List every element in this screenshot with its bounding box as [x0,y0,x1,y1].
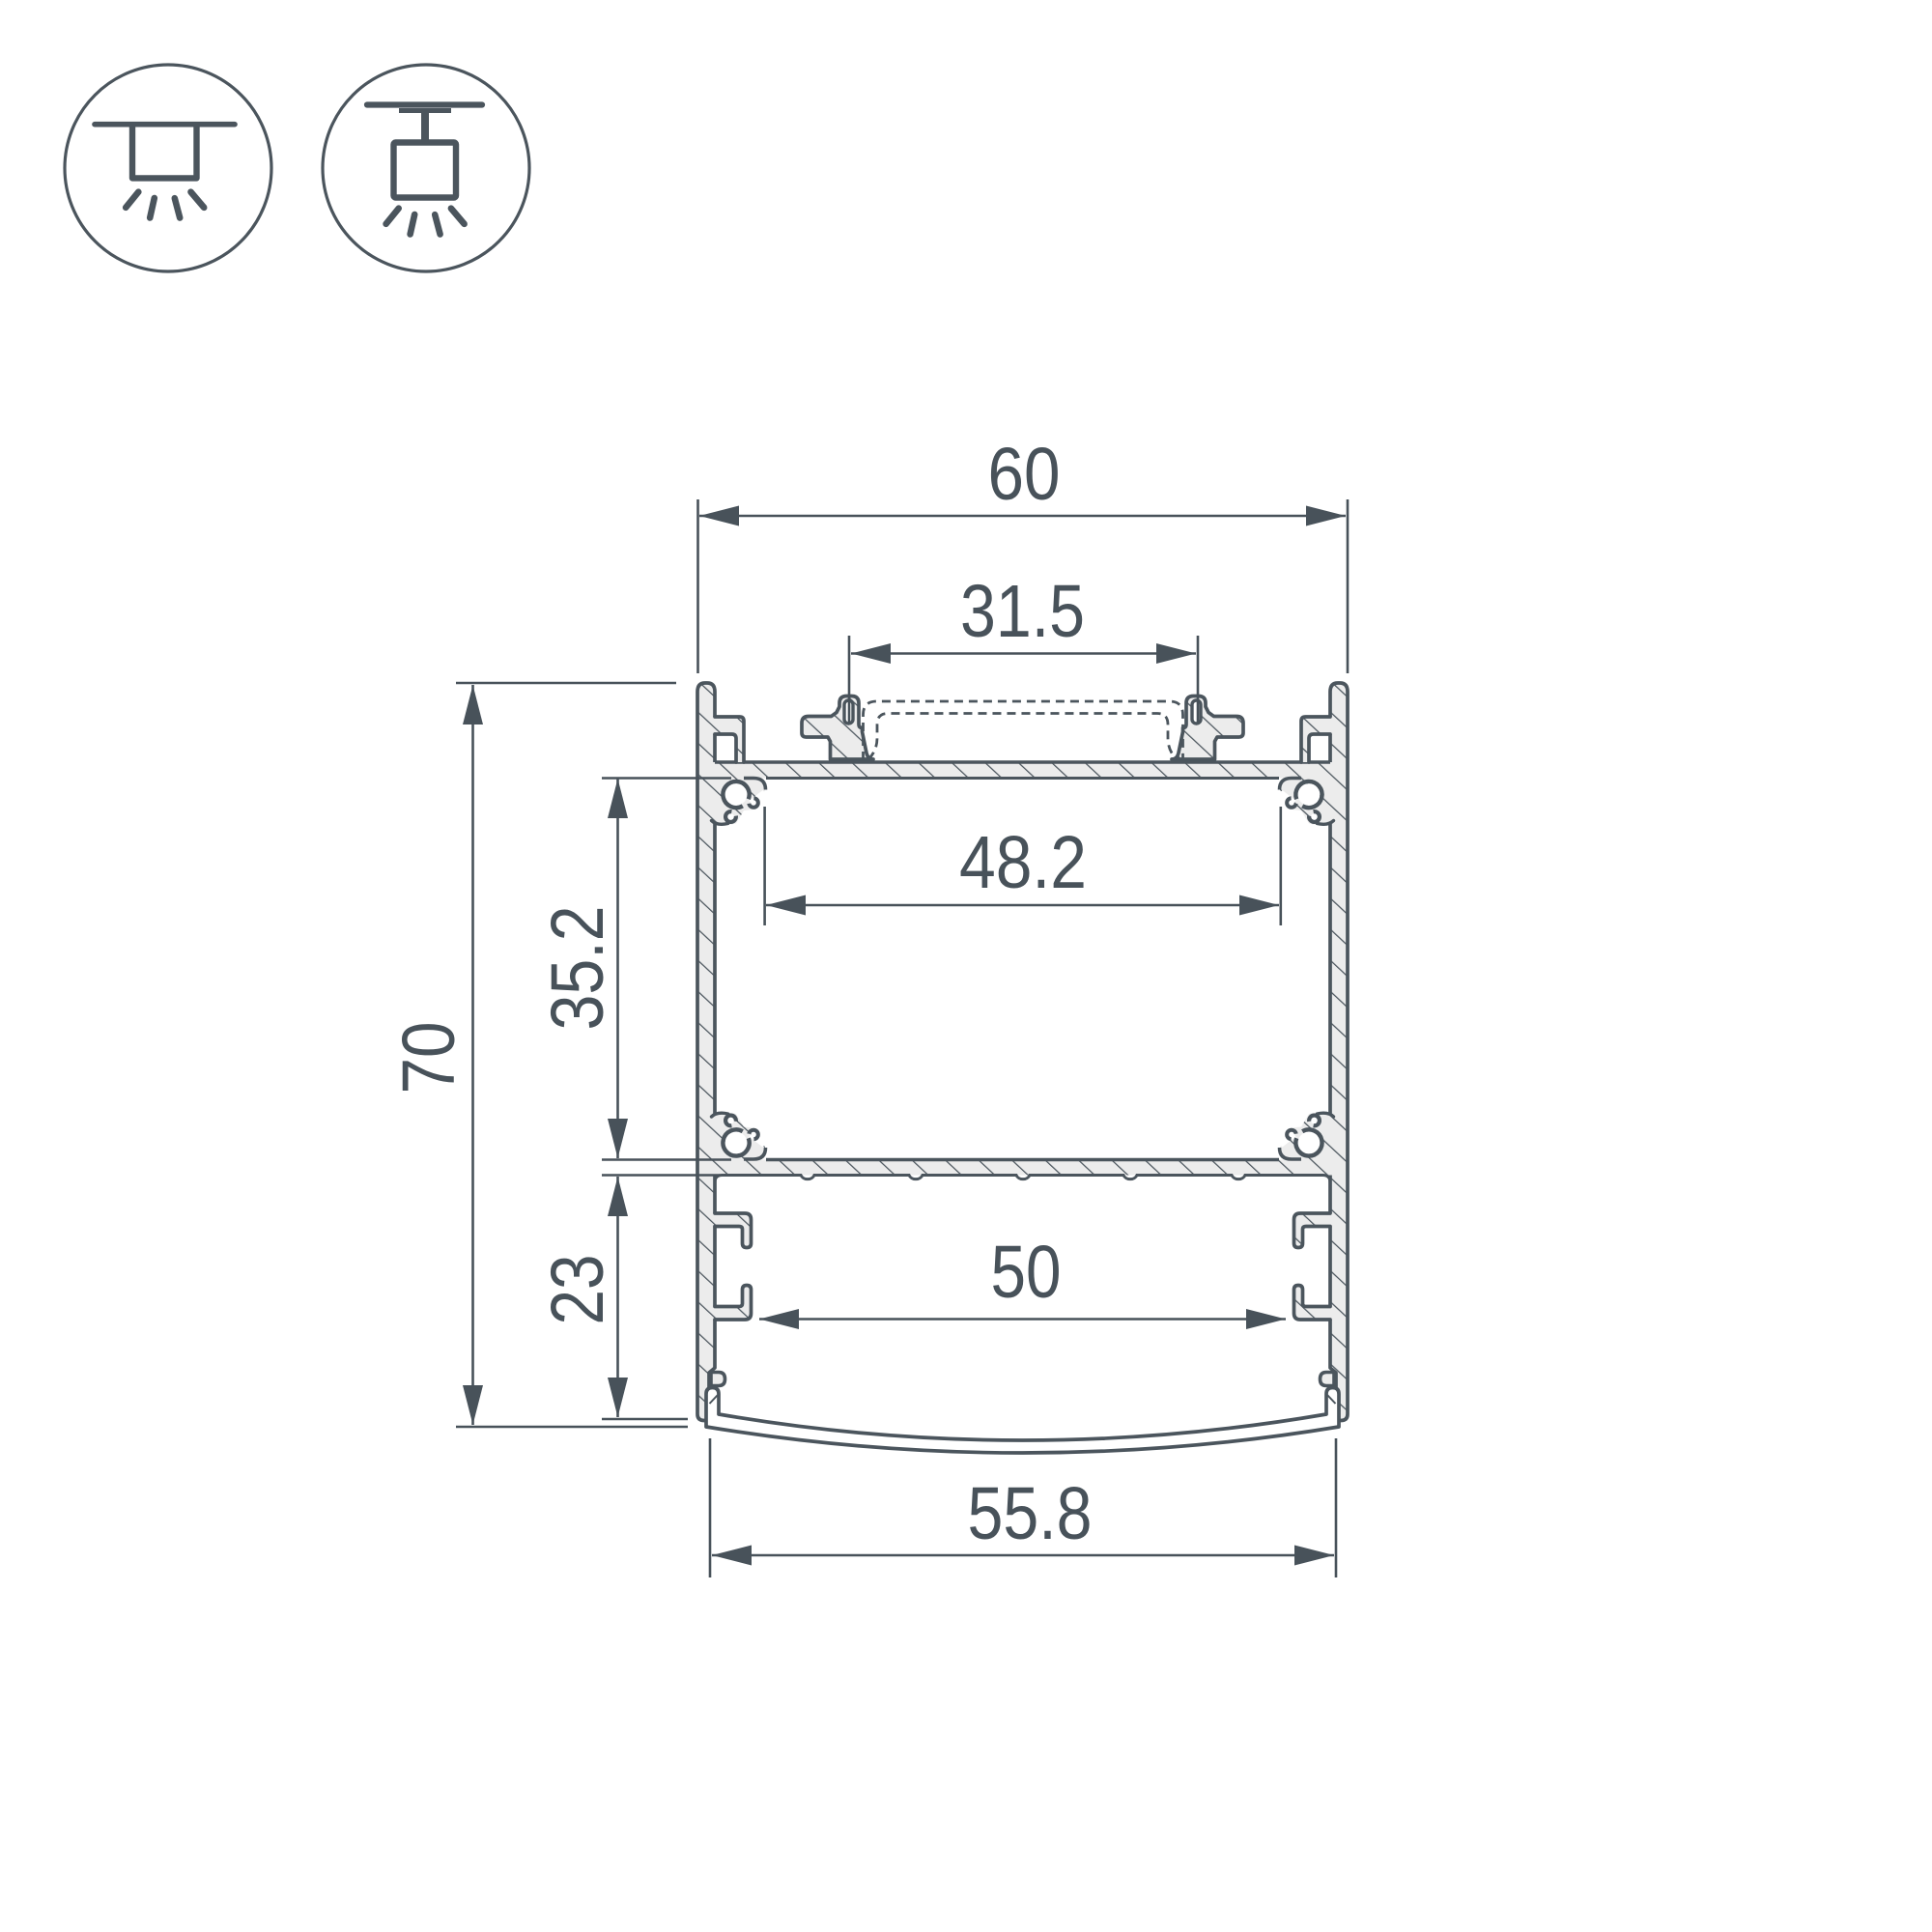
svg-text:35.2: 35.2 [536,906,619,1031]
svg-text:70: 70 [387,1022,470,1094]
svg-text:23: 23 [536,1255,619,1325]
svg-text:50: 50 [991,1231,1062,1314]
svg-text:60: 60 [988,433,1061,516]
svg-text:31.5: 31.5 [960,570,1085,653]
svg-text:55.8: 55.8 [968,1472,1093,1555]
svg-text:48.2: 48.2 [959,821,1087,904]
